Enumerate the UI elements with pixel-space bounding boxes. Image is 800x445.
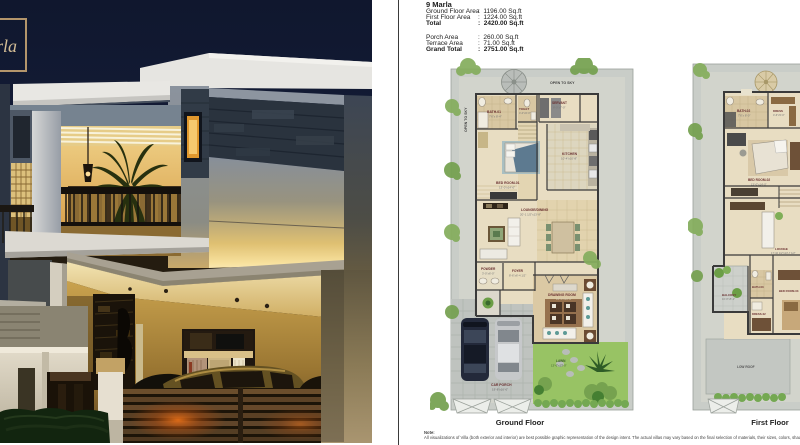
svg-text:OPEN TO SKY: OPEN TO SKY bbox=[550, 81, 575, 85]
svg-text:LAWN: LAWN bbox=[556, 359, 566, 363]
svg-text:BALCONY: BALCONY bbox=[722, 293, 736, 297]
svg-text:BATH-01: BATH-01 bbox=[487, 110, 501, 114]
svg-text:7'6"x 8'-4": 7'6"x 8'-4" bbox=[489, 115, 502, 119]
svg-text:BATH-03: BATH-03 bbox=[752, 285, 764, 289]
svg-text:LOUNGE/DINING: LOUNGE/DINING bbox=[521, 208, 549, 212]
svg-text:LOW ROOF: LOW ROOF bbox=[737, 365, 755, 369]
svg-text:20'-1 1/2"x13'-8": 20'-1 1/2"x13'-8" bbox=[520, 213, 541, 217]
svg-text:19'-8"x16'-0": 19'-8"x16'-0" bbox=[492, 388, 508, 392]
svg-text:DRESS: DRESS bbox=[773, 109, 783, 113]
svg-text:OPEN TO SKY: OPEN TO SKY bbox=[464, 107, 468, 132]
svg-text:7'6"x 8'-0": 7'6"x 8'-0" bbox=[738, 114, 750, 118]
svg-text:13'-0"x14'-0": 13'-0"x14'-0" bbox=[499, 186, 515, 190]
svg-text:SERVANT: SERVANT bbox=[552, 101, 567, 105]
svg-text:10'-4"x10'-8": 10'-4"x10'-8" bbox=[561, 157, 577, 161]
svg-text:BATH-02: BATH-02 bbox=[737, 109, 750, 113]
svg-text:POWDER: POWDER bbox=[481, 267, 496, 271]
svg-text:10'-0"x5'-1": 10'-0"x5'-1" bbox=[722, 297, 735, 301]
svg-text:BED ROOM-02: BED ROOM-02 bbox=[748, 178, 770, 182]
svg-text:LOUNGE: LOUNGE bbox=[775, 247, 788, 251]
svg-text:16'-0"x12'-0": 16'-0"x12'-0" bbox=[556, 297, 572, 301]
svg-text:3'-0"x6'-0": 3'-0"x6'-0" bbox=[482, 272, 495, 276]
svg-text:KITCHEN: KITCHEN bbox=[562, 152, 578, 156]
svg-text:8'-6"x6'-4 1/2": 8'-6"x6'-4 1/2" bbox=[509, 274, 526, 278]
svg-text:4'-6"x5'-0": 4'-6"x5'-0" bbox=[773, 113, 785, 117]
svg-text:8'-0"x7'-0": 8'-0"x7'-0" bbox=[553, 106, 566, 110]
svg-text:FOYER: FOYER bbox=[512, 269, 524, 273]
svg-text:4'-0"x6'-0": 4'-0"x6'-0" bbox=[519, 111, 531, 115]
svg-text:13'-0"x13'-0": 13'-0"x13'-0" bbox=[551, 364, 567, 368]
svg-text:TOILET: TOILET bbox=[519, 107, 529, 111]
svg-text:DRESS-02: DRESS-02 bbox=[752, 312, 766, 316]
svg-text:rla: rla bbox=[0, 36, 17, 56]
svg-text:BED ROOM-01: BED ROOM-01 bbox=[496, 181, 520, 185]
svg-text:CAR PORCH: CAR PORCH bbox=[491, 383, 512, 387]
svg-text:BED ROOM-03: BED ROOM-03 bbox=[779, 289, 799, 293]
